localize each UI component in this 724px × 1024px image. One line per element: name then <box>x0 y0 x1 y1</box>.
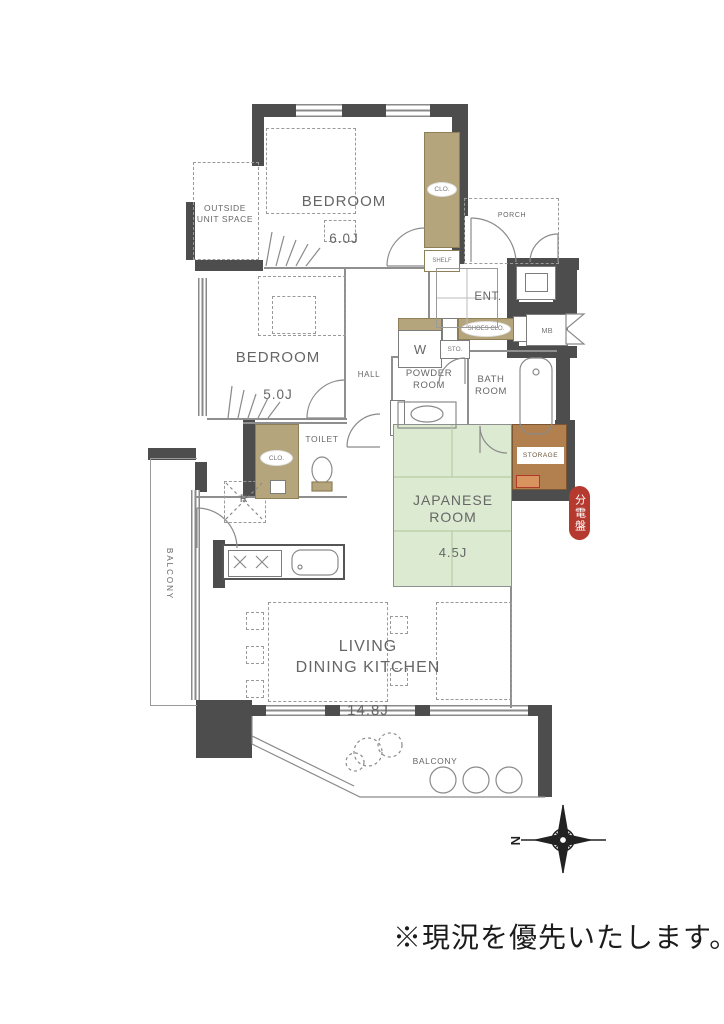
bathtub-drain-icon <box>533 369 539 375</box>
hall-label: HALL <box>346 370 392 380</box>
bathtub-icon <box>520 358 552 434</box>
balcony-planter-icon <box>430 767 456 793</box>
porch-area <box>464 198 559 264</box>
floorplan-canvas: OUTSIDE UNIT SPACE PORCH R CLO. SHELF SH… <box>0 0 724 1024</box>
wall-segment <box>252 104 464 117</box>
bedroom5-label: BEDROOM 5.0J <box>218 330 338 405</box>
storage-small-label: STO. <box>447 346 462 353</box>
ldk-label: LIVING DINING KITCHEN 14.8J <box>278 614 458 722</box>
bath-room-label: BATH ROOM <box>462 374 520 398</box>
balcony-plants-icon <box>346 733 402 771</box>
bedroom5-name: BEDROOM <box>236 349 321 366</box>
door-arc-hall <box>347 414 380 447</box>
storage-label-box: STORAGE <box>517 447 564 464</box>
ldk-name: LIVING DINING KITCHEN <box>296 638 441 677</box>
closet-bedroom6-label-oval: CLO. <box>427 182 457 197</box>
japanese-room-label: JAPANESE ROOM 4.5J <box>398 474 508 562</box>
japanese-room-size: 4.5J <box>439 545 468 560</box>
wall-segment <box>252 104 264 166</box>
meter-box: MB <box>526 314 568 346</box>
bedroom6-label: BEDROOM 6.0J <box>284 174 404 249</box>
compass-north-label: N <box>508 836 523 845</box>
compass-icon: N <box>508 805 606 873</box>
chair-outline <box>246 680 264 698</box>
cabinet <box>270 480 286 494</box>
window <box>198 278 207 416</box>
washer-label: W <box>414 342 426 357</box>
outside-unit-space-label: OUTSIDE UNIT SPACE <box>191 203 259 224</box>
chair-outline <box>246 646 264 664</box>
toilet-tank-icon <box>312 482 332 491</box>
balcony-bottom-outline <box>252 716 545 797</box>
partition <box>207 418 347 420</box>
balcony-planter-icon <box>496 767 522 793</box>
porch-label: PORCH <box>482 212 542 221</box>
bedroom5-size: 5.0J <box>263 387 293 402</box>
storage-small: STO. <box>440 340 470 359</box>
balcony-left-area <box>150 458 197 706</box>
chair-outline <box>246 612 264 630</box>
window <box>386 104 430 117</box>
bedroom6-size: 6.0J <box>329 231 359 246</box>
toilet-label: TOILET <box>294 434 350 445</box>
sink-bowl-icon <box>411 406 443 422</box>
japanese-room-name: JAPANESE ROOM <box>413 492 493 526</box>
wall-segment <box>195 260 263 271</box>
balcony-planter-icon <box>463 767 489 793</box>
toilet-bowl-icon <box>312 457 332 483</box>
note-text: ※現況を優先いたします。 <box>393 916 723 956</box>
window-mullion <box>528 705 542 716</box>
stove <box>228 550 282 577</box>
shelf-label: SHELF <box>432 258 451 264</box>
balcony-bottom-label: BALCONY <box>404 756 466 767</box>
entrance-label: ENT. <box>460 290 516 304</box>
closet-hall-label: CLO. <box>269 455 284 462</box>
furniture-outline <box>272 296 316 334</box>
wall-segment <box>556 348 570 426</box>
utility-box-inner <box>525 273 548 292</box>
partition <box>467 350 557 352</box>
wall-segment <box>538 705 552 797</box>
wall-segment <box>196 700 252 758</box>
bedroom6-name: BEDROOM <box>302 193 387 210</box>
closet-bedroom6-label: CLO. <box>434 186 449 193</box>
powder-room-label: POWDER ROOM <box>398 368 460 392</box>
balcony-bottom-inner-line <box>252 736 354 786</box>
closet-hall-label-oval: CLO. <box>260 450 293 466</box>
storage-step <box>516 475 540 488</box>
detail-layer: N <box>0 0 724 1024</box>
window-mullion <box>252 705 266 716</box>
washer-space: W <box>398 330 442 368</box>
distribution-board-badge: 分電盤 <box>569 486 590 540</box>
storage-label: STORAGE <box>523 452 558 459</box>
meter-box-doors <box>566 314 584 344</box>
window <box>296 104 342 117</box>
meter-box-label: MB <box>541 326 552 335</box>
ldk-size: 14.8J <box>347 702 389 719</box>
